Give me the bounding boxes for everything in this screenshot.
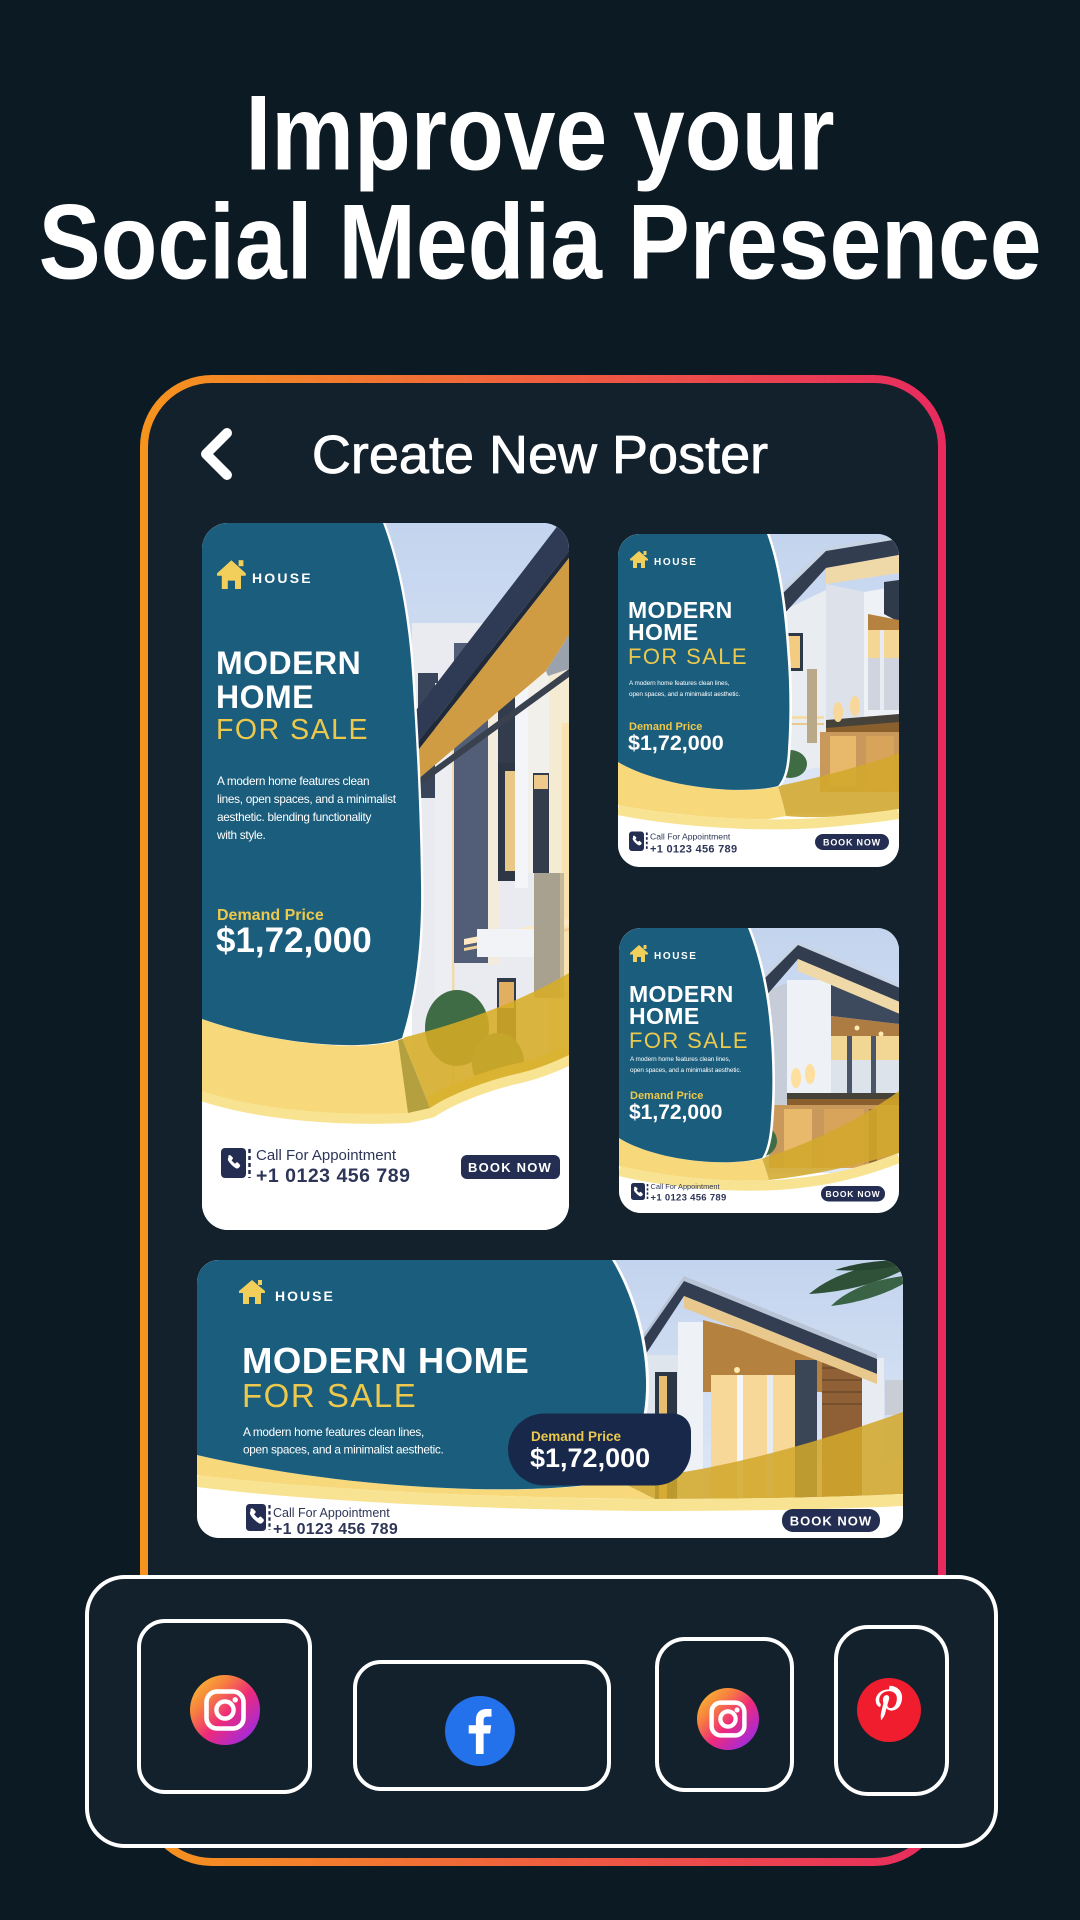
svg-text:HOUSE: HOUSE: [275, 1288, 335, 1304]
svg-text:Call For Appointment: Call For Appointment: [651, 1182, 720, 1191]
svg-text:+1 0123 456 789: +1 0123 456 789: [651, 1193, 727, 1204]
svg-text:FOR SALE: FOR SALE: [242, 1377, 417, 1414]
svg-text:FOR SALE: FOR SALE: [216, 714, 369, 746]
svg-text:open spaces, and a minimalist: open spaces, and a minimalist aesthetic.: [243, 1443, 443, 1457]
svg-text:A modern home features clean l: A modern home features clean lines,: [630, 1056, 731, 1063]
svg-text:BOOK NOW: BOOK NOW: [825, 1189, 880, 1199]
svg-text:Demand Price: Demand Price: [531, 1429, 622, 1444]
svg-text:$1,72,000: $1,72,000: [216, 921, 372, 960]
svg-text:$1,72,000: $1,72,000: [530, 1443, 650, 1473]
svg-text:+1 0123 456 789: +1 0123 456 789: [256, 1165, 410, 1187]
svg-text:HOUSE: HOUSE: [252, 570, 313, 586]
svg-text:$1,72,000: $1,72,000: [628, 731, 724, 755]
svg-text:open spaces, and a minimalist: open spaces, and a minimalist aesthetic.: [629, 691, 740, 698]
svg-text:BOOK NOW: BOOK NOW: [790, 1514, 872, 1529]
svg-text:HOUSE: HOUSE: [654, 557, 698, 568]
svg-text:A modern home features clean l: A modern home features clean lines,: [629, 680, 730, 687]
svg-text:+1 0123 456 789: +1 0123 456 789: [650, 844, 737, 856]
svg-text:$1,72,000: $1,72,000: [629, 1101, 722, 1124]
svg-text:MODERN: MODERN: [216, 645, 361, 681]
svg-text:lines, open spaces, and a mini: lines, open spaces, and a minimalist: [217, 792, 397, 806]
svg-text:Call For Appointment: Call For Appointment: [256, 1147, 397, 1164]
svg-text:A modern home features clean: A modern home features clean: [217, 774, 369, 788]
svg-text:open spaces, and a minimalist: open spaces, and a minimalist aesthetic.: [630, 1067, 741, 1074]
svg-text:BOOK NOW: BOOK NOW: [468, 1160, 552, 1175]
svg-text:Call For Appointment: Call For Appointment: [273, 1506, 390, 1520]
svg-text:HOME: HOME: [216, 679, 314, 715]
svg-text:Call For Appointment: Call For Appointment: [650, 832, 731, 842]
svg-text:FOR SALE: FOR SALE: [628, 644, 748, 669]
svg-text:MODERN HOME: MODERN HOME: [242, 1340, 529, 1381]
svg-text:BOOK NOW: BOOK NOW: [823, 838, 881, 848]
svg-text:+1 0123 456 789: +1 0123 456 789: [273, 1521, 398, 1538]
svg-text:HOME: HOME: [628, 619, 699, 645]
svg-text:A modern home features clean l: A modern home features clean lines,: [243, 1425, 424, 1439]
svg-text:with style.: with style.: [216, 828, 266, 842]
svg-text:FOR SALE: FOR SALE: [629, 1028, 749, 1053]
svg-text:aesthetic. blending functional: aesthetic. blending functionality: [217, 810, 371, 824]
svg-text:HOME: HOME: [629, 1003, 700, 1029]
svg-text:HOUSE: HOUSE: [654, 951, 698, 962]
